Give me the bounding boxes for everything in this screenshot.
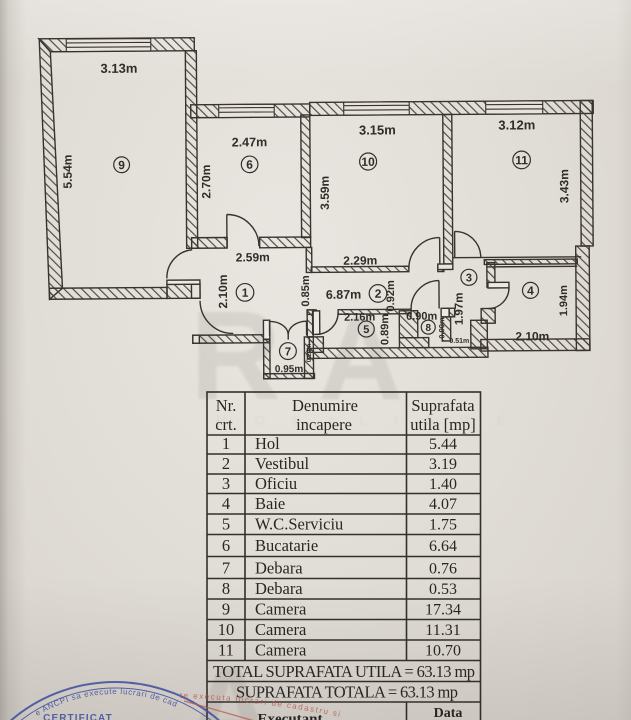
svg-text:17.34: 17.34 <box>425 602 461 619</box>
svg-text:crt.: crt. <box>215 415 237 434</box>
svg-text:6.64: 6.64 <box>429 538 457 555</box>
svg-text:2: 2 <box>222 454 230 473</box>
svg-text:Data: Data <box>434 706 463 720</box>
svg-text:2.10m: 2.10m <box>216 274 230 308</box>
svg-text:1: 1 <box>222 434 230 453</box>
svg-text:10: 10 <box>218 620 235 639</box>
svg-text:Camera: Camera <box>255 641 307 660</box>
svg-text:0.89m: 0.89m <box>379 314 391 345</box>
svg-text:6: 6 <box>246 158 253 172</box>
svg-text:2.29m: 2.29m <box>343 253 377 267</box>
svg-text:3: 3 <box>222 474 230 493</box>
svg-text:5: 5 <box>222 515 230 534</box>
svg-text:CERTIFICAT: CERTIFICAT <box>43 713 113 720</box>
svg-text:0.92m: 0.92m <box>385 280 397 311</box>
svg-text:5: 5 <box>363 324 369 336</box>
svg-text:utila [mp]: utila [mp] <box>410 415 476 434</box>
svg-text:6: 6 <box>222 536 230 555</box>
svg-text:4.07: 4.07 <box>429 496 457 513</box>
svg-text:Debara: Debara <box>255 559 303 578</box>
svg-text:11: 11 <box>218 641 234 660</box>
svg-text:Nr.: Nr. <box>216 396 237 415</box>
svg-text:0.90m: 0.90m <box>406 311 437 323</box>
svg-text:0.20m: 0.20m <box>306 343 313 362</box>
svg-text:1.94m: 1.94m <box>558 285 570 316</box>
svg-text:7: 7 <box>285 346 291 358</box>
svg-text:11: 11 <box>515 153 528 167</box>
svg-text:3.19: 3.19 <box>429 456 457 473</box>
svg-text:1.75: 1.75 <box>429 517 457 534</box>
svg-text:9: 9 <box>222 600 230 619</box>
svg-text:3.12m: 3.12m <box>498 117 535 132</box>
svg-text:0.76: 0.76 <box>429 561 457 578</box>
svg-text:Hol: Hol <box>255 434 280 453</box>
svg-text:1.40: 1.40 <box>429 476 457 493</box>
svg-text:incapere: incapere <box>296 415 352 434</box>
svg-text:Denumire: Denumire <box>292 396 358 415</box>
svg-text:3: 3 <box>466 272 472 284</box>
svg-text:3.59m: 3.59m <box>318 176 332 210</box>
svg-text:5.44: 5.44 <box>429 436 457 453</box>
svg-text:0.90m: 0.90m <box>437 317 446 339</box>
svg-text:8: 8 <box>222 579 230 598</box>
svg-text:0.85m: 0.85m <box>300 275 312 306</box>
svg-text:4: 4 <box>527 284 534 298</box>
svg-text:10.70: 10.70 <box>425 643 461 660</box>
svg-text:3.15m: 3.15m <box>359 122 396 137</box>
svg-text:1: 1 <box>242 286 249 300</box>
svg-text:Debara: Debara <box>255 579 303 598</box>
svg-text:3.13m: 3.13m <box>100 61 137 76</box>
svg-text:0.51m: 0.51m <box>449 338 469 345</box>
svg-text:Oficiu: Oficiu <box>255 474 297 493</box>
svg-text:Vestibul: Vestibul <box>255 454 310 473</box>
svg-text:3.43m: 3.43m <box>557 169 571 203</box>
svg-text:2: 2 <box>375 287 382 301</box>
svg-text:10: 10 <box>361 155 375 169</box>
svg-text:2.70m: 2.70m <box>199 165 213 199</box>
svg-text:1.97m: 1.97m <box>454 293 466 326</box>
svg-text:Camera: Camera <box>255 620 307 639</box>
svg-text:4: 4 <box>222 494 230 513</box>
svg-text:Camera: Camera <box>255 600 307 619</box>
svg-text:7: 7 <box>222 559 230 578</box>
svg-text:11.31: 11.31 <box>425 622 460 639</box>
svg-text:8: 8 <box>425 323 431 334</box>
svg-text:Suprafata: Suprafata <box>411 396 475 415</box>
svg-text:2.59m: 2.59m <box>236 250 270 264</box>
svg-text:TOTAL SUPRAFATA UTILA = 63.13: TOTAL SUPRAFATA UTILA = 63.13 mp <box>213 662 475 681</box>
svg-text:9: 9 <box>118 158 125 172</box>
svg-text:2.10m: 2.10m <box>515 329 549 343</box>
svg-text:6.87m: 6.87m <box>326 288 362 302</box>
svg-text:2.47m: 2.47m <box>232 135 268 149</box>
svg-text:Bucatarie: Bucatarie <box>255 536 318 555</box>
svg-text:0.95m: 0.95m <box>275 364 304 375</box>
svg-text:0.53: 0.53 <box>429 581 457 598</box>
svg-text:W.C.Serviciu: W.C.Serviciu <box>255 515 343 534</box>
svg-text:Baie: Baie <box>255 494 285 513</box>
svg-text:5.54m: 5.54m <box>61 155 75 189</box>
